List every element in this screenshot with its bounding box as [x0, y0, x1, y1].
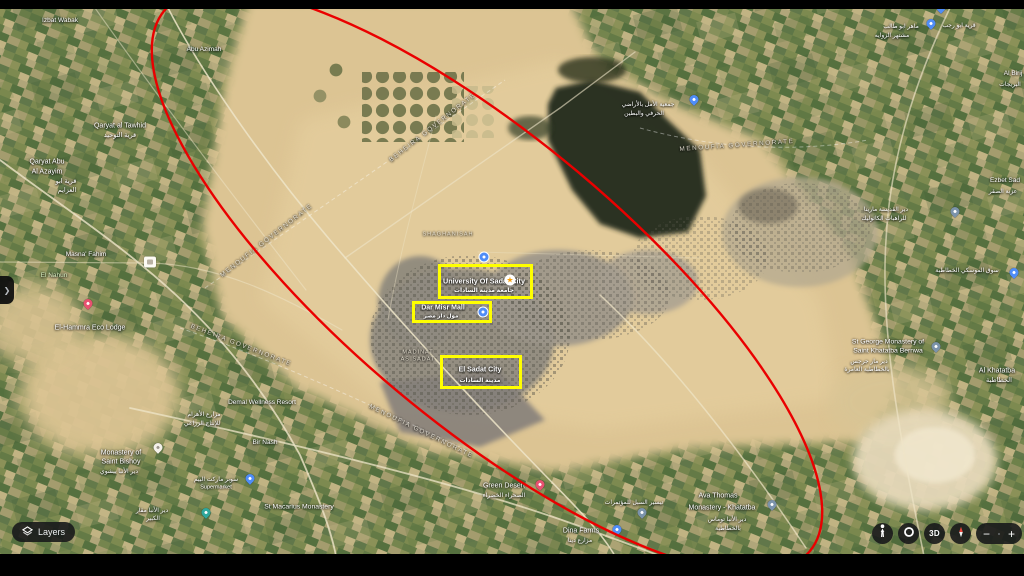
3d-button[interactable]: 3D [924, 523, 945, 544]
3d-button-label: 3D [929, 529, 940, 538]
zoom-out-button[interactable]: − [983, 528, 990, 540]
map-controls: 3D − + [872, 523, 1022, 544]
compass-button[interactable] [950, 523, 971, 544]
satellite-imagery[interactable] [0, 0, 1024, 576]
top-letterbox-bar [0, 0, 1024, 9]
compass-icon [955, 525, 967, 543]
orbit-ring-icon [903, 525, 915, 543]
zoom-in-button[interactable]: + [1008, 528, 1015, 540]
layers-icon [22, 526, 33, 539]
chevron-right-icon: ❯ [4, 286, 11, 295]
zoom-divider-dot [998, 533, 1000, 535]
screenshot-stage: Izbat WabakAbu AzimahQaryat al Tawhidقري… [0, 0, 1024, 576]
layers-button[interactable]: Layers [12, 522, 75, 542]
zoom-control: − + [976, 523, 1022, 544]
side-panel-toggle[interactable]: ❯ [0, 276, 14, 304]
map-viewport[interactable]: Izbat WabakAbu AzimahQaryat al Tawhidقري… [0, 0, 1024, 576]
pegman-icon [878, 524, 887, 543]
bottom-letterbox-bar [0, 554, 1024, 576]
orbit-button[interactable] [898, 523, 919, 544]
layers-button-label: Layers [38, 527, 65, 537]
pegman-button[interactable] [872, 523, 893, 544]
